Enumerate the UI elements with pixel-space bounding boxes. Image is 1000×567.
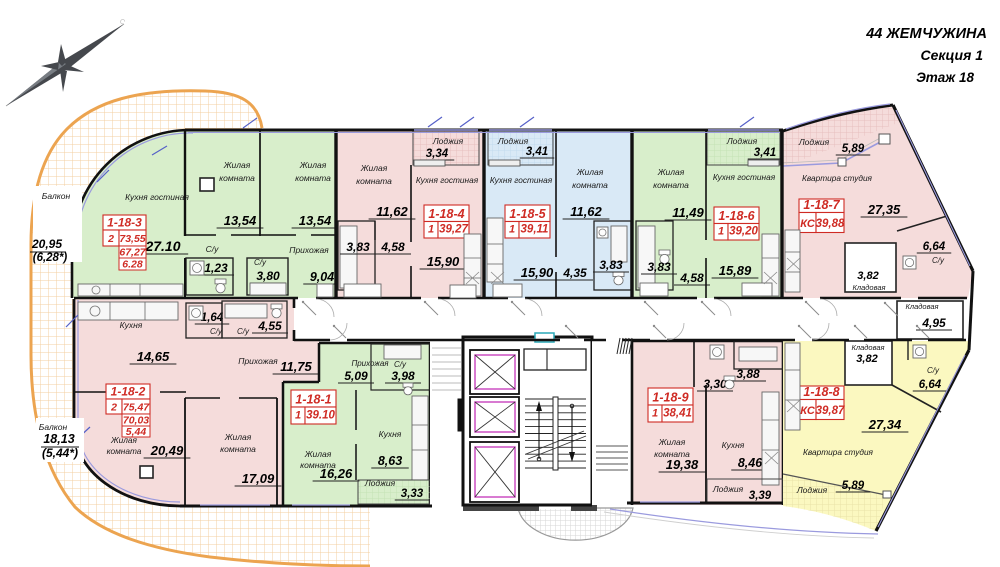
svg-text:20,49: 20,49 — [150, 443, 184, 458]
svg-text:39,20: 39,20 — [729, 226, 758, 238]
svg-text:1-18-4: 1-18-4 — [428, 207, 464, 221]
svg-text:38,41: 38,41 — [663, 408, 692, 420]
svg-text:комната: комната — [219, 173, 255, 183]
svg-text:1: 1 — [652, 408, 658, 420]
svg-text:39,88: 39,88 — [816, 218, 845, 230]
svg-text:3,41: 3,41 — [754, 147, 776, 159]
svg-text:11,75: 11,75 — [280, 359, 312, 374]
svg-text:1-18-8: 1-18-8 — [803, 385, 839, 399]
svg-text:75,47: 75,47 — [123, 402, 150, 414]
svg-text:Прихожая: Прихожая — [289, 245, 329, 255]
svg-text:1-18-3: 1-18-3 — [107, 216, 142, 230]
svg-text:13,54: 13,54 — [299, 213, 332, 228]
svg-text:С/у: С/у — [254, 258, 267, 267]
svg-text:Квартира студия: Квартира студия — [802, 173, 873, 183]
svg-text:Жилая: Жилая — [360, 163, 388, 173]
svg-text:1-18-6: 1-18-6 — [718, 209, 755, 223]
svg-text:Прихожая: Прихожая — [238, 356, 278, 366]
svg-text:1: 1 — [718, 226, 724, 238]
svg-text:2: 2 — [107, 233, 114, 245]
svg-text:13,54: 13,54 — [224, 213, 257, 228]
svg-text:С/у: С/у — [206, 244, 220, 254]
svg-text:5,09: 5,09 — [344, 369, 368, 383]
svg-text:(5,44*): (5,44*) — [42, 446, 78, 460]
svg-text:70,03: 70,03 — [123, 415, 149, 427]
svg-text:8,46: 8,46 — [738, 456, 763, 470]
svg-text:3,33: 3,33 — [401, 488, 424, 500]
svg-text:1-18-1: 1-18-1 — [295, 393, 331, 407]
svg-text:1: 1 — [428, 224, 434, 236]
svg-text:Кухня: Кухня — [379, 429, 402, 439]
svg-text:15,90: 15,90 — [521, 265, 554, 280]
svg-text:комната: комната — [220, 444, 256, 454]
svg-text:Жилая: Жилая — [576, 167, 604, 177]
svg-text:(6,28*): (6,28*) — [33, 252, 68, 264]
svg-text:Кладовая: Кладовая — [852, 283, 885, 292]
svg-text:5,89: 5,89 — [842, 143, 865, 155]
svg-text:67,27: 67,27 — [119, 247, 146, 259]
svg-text:39,11: 39,11 — [521, 224, 549, 236]
svg-text:6,64: 6,64 — [923, 241, 946, 253]
svg-text:С/у: С/у — [932, 256, 945, 265]
svg-text:Лоджия: Лоджия — [796, 485, 828, 495]
svg-text:Прихожая: Прихожая — [351, 359, 389, 368]
svg-text:1: 1 — [295, 410, 301, 422]
svg-text:Балкон: Балкон — [39, 422, 68, 432]
svg-text:3,80: 3,80 — [256, 269, 280, 283]
svg-text:4,35: 4,35 — [562, 266, 587, 280]
svg-text:3,82: 3,82 — [856, 353, 877, 365]
svg-text:1: 1 — [509, 224, 515, 236]
svg-text:39.10: 39.10 — [306, 410, 335, 422]
svg-text:73,55: 73,55 — [119, 233, 145, 245]
svg-text:С/у: С/у — [210, 327, 223, 336]
svg-text:5,44: 5,44 — [126, 426, 147, 438]
svg-text:2: 2 — [110, 402, 117, 414]
svg-text:КС: КС — [800, 218, 816, 230]
svg-text:Жилая: Жилая — [658, 437, 686, 447]
svg-text:15,90: 15,90 — [427, 254, 460, 269]
svg-text:4,95: 4,95 — [921, 316, 946, 330]
svg-text:Лоджия: Лоджия — [798, 137, 830, 147]
svg-text:6,64: 6,64 — [919, 379, 942, 391]
svg-text:Балкон: Балкон — [42, 191, 71, 201]
svg-text:4,58: 4,58 — [679, 271, 704, 285]
svg-text:27,34: 27,34 — [868, 417, 902, 432]
svg-text:3,41: 3,41 — [526, 146, 548, 158]
svg-text:1-18-5: 1-18-5 — [509, 207, 546, 221]
svg-text:комната: комната — [295, 173, 331, 183]
svg-text:Кладовая: Кладовая — [905, 302, 938, 311]
svg-text:1,23: 1,23 — [204, 261, 228, 275]
svg-text:3,39: 3,39 — [749, 490, 772, 502]
svg-text:1-18-9: 1-18-9 — [652, 391, 688, 405]
svg-text:19,38: 19,38 — [666, 457, 699, 472]
svg-text:11,49: 11,49 — [672, 205, 704, 220]
svg-text:27.10: 27.10 — [144, 238, 180, 254]
svg-text:Лоджия: Лоджия — [364, 478, 396, 488]
svg-text:4,58: 4,58 — [380, 240, 405, 254]
svg-text:3,83: 3,83 — [346, 240, 370, 254]
svg-text:5,89: 5,89 — [842, 480, 865, 492]
svg-text:Кухня гостиная: Кухня гостиная — [490, 175, 553, 185]
svg-text:КС: КС — [800, 405, 816, 417]
svg-text:44 ЖЕМЧУЖИНА: 44 ЖЕМЧУЖИНА — [865, 26, 987, 42]
svg-text:Этаж 18: Этаж 18 — [916, 70, 974, 85]
svg-text:комната: комната — [107, 446, 142, 456]
svg-text:1-18-7: 1-18-7 — [803, 198, 840, 212]
svg-text:Кладовая: Кладовая — [851, 343, 884, 352]
svg-text:18,13: 18,13 — [43, 432, 74, 446]
svg-text:11,62: 11,62 — [376, 204, 408, 219]
svg-text:8,63: 8,63 — [378, 454, 402, 468]
svg-text:14,65: 14,65 — [137, 349, 170, 364]
svg-text:Лоджия: Лоджия — [726, 136, 758, 146]
svg-text:6.28: 6.28 — [122, 259, 143, 271]
svg-text:16,26: 16,26 — [320, 466, 353, 481]
svg-text:Жилая: Жилая — [223, 160, 251, 170]
svg-text:3,83: 3,83 — [599, 258, 623, 272]
svg-text:3,88: 3,88 — [736, 367, 760, 381]
svg-text:Квартира студия: Квартира студия — [803, 447, 874, 457]
svg-text:Лоджия: Лоджия — [432, 136, 464, 146]
svg-text:комната: комната — [572, 180, 608, 190]
svg-text:3,98: 3,98 — [391, 369, 415, 383]
svg-text:3,83: 3,83 — [647, 260, 671, 274]
svg-text:9,04: 9,04 — [310, 270, 334, 284]
svg-text:Жилая: Жилая — [304, 449, 332, 459]
svg-text:комната: комната — [653, 180, 689, 190]
svg-text:20,95: 20,95 — [31, 237, 62, 251]
svg-text:15,89: 15,89 — [719, 263, 752, 278]
svg-text:Кухня: Кухня — [722, 440, 745, 450]
svg-text:Кухня гостиная: Кухня гостиная — [416, 175, 479, 185]
svg-text:С/у: С/у — [394, 360, 407, 369]
svg-text:3,82: 3,82 — [857, 270, 878, 282]
svg-text:Лоджия: Лоджия — [497, 136, 529, 146]
svg-text:1-18-2: 1-18-2 — [111, 385, 146, 399]
svg-text:Жилая: Жилая — [224, 432, 252, 442]
svg-text:Кухня гостиная: Кухня гостиная — [713, 172, 776, 182]
svg-text:4,55: 4,55 — [257, 319, 282, 333]
svg-text:27,35: 27,35 — [867, 202, 901, 217]
svg-text:комната: комната — [356, 176, 392, 186]
svg-text:11,62: 11,62 — [570, 204, 602, 219]
svg-text:Жилая: Жилая — [657, 167, 685, 177]
svg-text:17,09: 17,09 — [242, 471, 275, 486]
svg-text:Жилая: Жилая — [299, 160, 327, 170]
svg-text:С/у: С/у — [927, 366, 940, 375]
svg-text:39,87: 39,87 — [816, 405, 845, 417]
svg-text:Кухня: Кухня — [120, 320, 143, 330]
svg-text:Лоджия: Лоджия — [712, 484, 744, 494]
svg-text:С/у: С/у — [237, 327, 250, 336]
svg-text:Секция 1: Секция 1 — [920, 47, 983, 63]
svg-text:Кухня гостиная: Кухня гостиная — [125, 192, 189, 202]
svg-text:1,64: 1,64 — [201, 312, 224, 324]
svg-text:3,34: 3,34 — [426, 148, 449, 160]
